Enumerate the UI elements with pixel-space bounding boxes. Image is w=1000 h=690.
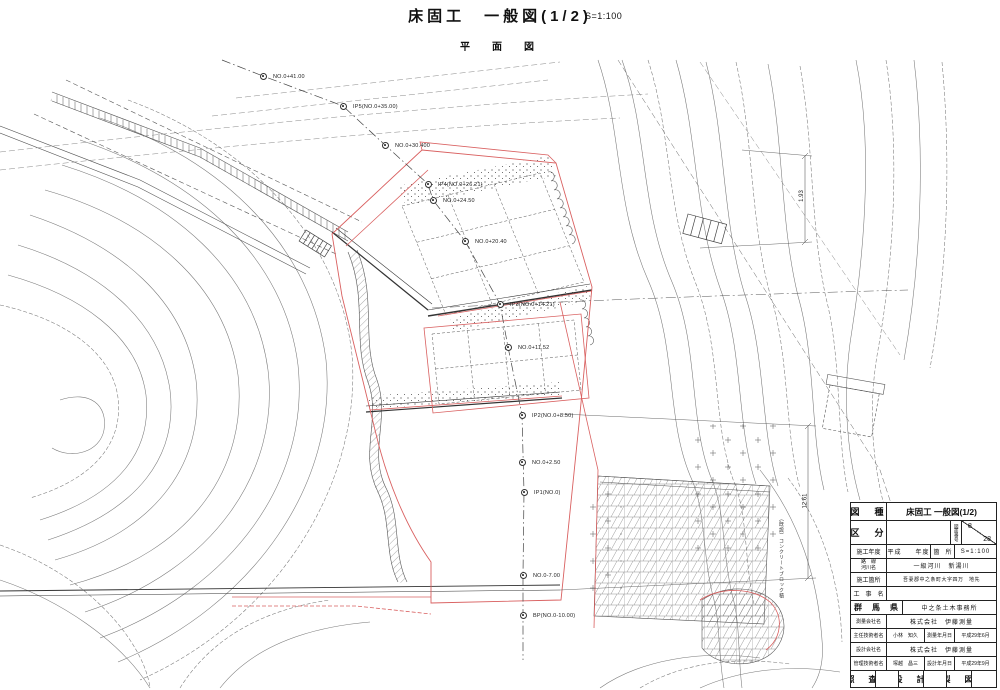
station-marker: IP3(NO.0+14.21)	[500, 301, 555, 308]
field-design-label: 設 計	[899, 671, 924, 688]
scale-note: S=1:100	[585, 11, 622, 21]
survey-point-icon	[519, 412, 526, 419]
bank-wall	[348, 250, 407, 582]
field-drawing-number-label: 図面番号	[951, 521, 962, 544]
field-office: 中之条土木事務所	[903, 601, 996, 614]
survey-point-icon	[462, 238, 469, 245]
station-marker: NO.0+41.00	[263, 73, 305, 80]
survey-point-icon	[521, 489, 528, 496]
field-design-company: 株式会社 伊藤測量	[887, 643, 996, 656]
dimension-label: 12.61	[803, 493, 809, 508]
field-survey-date-label: 測量年月日	[925, 629, 955, 642]
field-fiscal-year-label: 施工年度	[851, 545, 887, 558]
building-outline	[818, 374, 884, 437]
field-site-label: 施工箇所	[851, 573, 887, 586]
field-location-label: 箇 所	[931, 545, 955, 558]
field-route-label: 路 線 河川名	[851, 559, 887, 572]
sheet-number: 8	[968, 523, 972, 530]
page-title: 床固工 一般図(1/2)	[0, 5, 1000, 26]
survey-point-icon	[260, 73, 267, 80]
grid-cross-marks	[586, 488, 622, 592]
alignment-centerline	[222, 60, 524, 660]
station-marker: NO.0+2.50	[522, 459, 561, 466]
survey-point-icon	[505, 344, 512, 351]
check-stamp-box	[876, 671, 899, 688]
field-chief-engineer-label: 主任技術者名	[851, 629, 887, 642]
field-category-label: 区 分	[851, 521, 887, 544]
station-marker: NO.0-7.00	[523, 572, 560, 579]
field-category-value	[887, 521, 951, 544]
station-marker: IP5(NO.0+35.00)	[343, 103, 398, 110]
field-site-value: 吾妻郡中之条町大字四万 地先	[887, 573, 996, 586]
channel-structure	[0, 156, 885, 664]
survey-point-icon	[382, 142, 389, 149]
field-route-value: 一級河川 新湯川	[887, 559, 996, 572]
survey-point-icon	[520, 572, 527, 579]
field-design-date-label: 設計年月日	[925, 657, 955, 670]
sheet-total: 28	[983, 536, 991, 543]
field-drawing-type-label: 図 種	[851, 503, 887, 520]
field-design-company-label: 設計会社名	[851, 643, 887, 656]
drawing-sheet: 床固工 一般図(1/2) S=1:100 平 面 図 NO.0+41.00 IP…	[0, 0, 1000, 690]
field-drawing-number-value: 8 28	[962, 521, 996, 544]
survey-point-icon	[425, 181, 432, 188]
road-top-left	[0, 80, 362, 274]
grid-cross-marks	[690, 424, 776, 554]
bank-edge-scallops	[548, 172, 594, 345]
title-block: 図 種 床固工 一般図(1/2) 区 分 図面番号 8 28 施工年度 平成 年…	[850, 502, 997, 688]
station-marker: NO.0+24.50	[433, 197, 475, 204]
field-project-value	[887, 587, 996, 600]
view-subtitle: 平 面 図	[0, 38, 1000, 53]
station-marker: BP(NO.0-10.00)	[523, 612, 575, 619]
weir-lines	[0, 228, 592, 596]
field-project-label: 工 事 名	[851, 587, 887, 600]
survey-point-icon	[497, 301, 504, 308]
station-marker: NO.0+11.52	[508, 344, 549, 351]
contours-left	[0, 100, 370, 688]
wall-end-block	[299, 230, 331, 257]
field-manager-label: 管理技術者名	[851, 657, 887, 670]
annotation-existing-block-wall: （既設）コンクリートブロック積	[778, 516, 785, 599]
field-drawing-type-value: 床固工 一般図(1/2)	[887, 503, 996, 520]
field-check-label: 照 査	[851, 671, 876, 688]
field-survey-company-label: 測量会社名	[851, 615, 887, 628]
station-marker: NO.0+30.400	[385, 142, 430, 149]
dimension-label: 1.93	[799, 190, 805, 202]
survey-point-icon	[520, 612, 527, 619]
survey-point-icon	[340, 103, 347, 110]
field-manager: 塚越 昌三	[887, 657, 925, 670]
field-prefecture: 群 馬 県	[851, 601, 903, 614]
field-draft-label: 製 図	[947, 671, 972, 688]
field-scale-value: S=1:100	[955, 545, 996, 558]
station-marker: IP1(NO.0)	[524, 489, 561, 496]
survey-point-icon	[519, 459, 526, 466]
station-marker: NO.0+20.40	[465, 238, 507, 245]
field-fiscal-year-value: 平成 年度	[887, 545, 931, 558]
design-stamp-box	[924, 671, 947, 688]
field-design-date: 平成29年9月	[955, 657, 996, 670]
field-chief-engineer: 小林 知久	[887, 629, 925, 642]
field-survey-date: 平成29年6月	[955, 629, 996, 642]
station-marker: IP2(NO.0+8.50)	[522, 412, 573, 419]
survey-point-icon	[430, 197, 437, 204]
draft-stamp-box	[972, 671, 996, 688]
masonry-mound	[702, 589, 784, 664]
field-survey-company: 株式会社 伊藤測量	[887, 615, 996, 628]
station-marker: IP4(NO.0+26.21)	[428, 181, 483, 188]
